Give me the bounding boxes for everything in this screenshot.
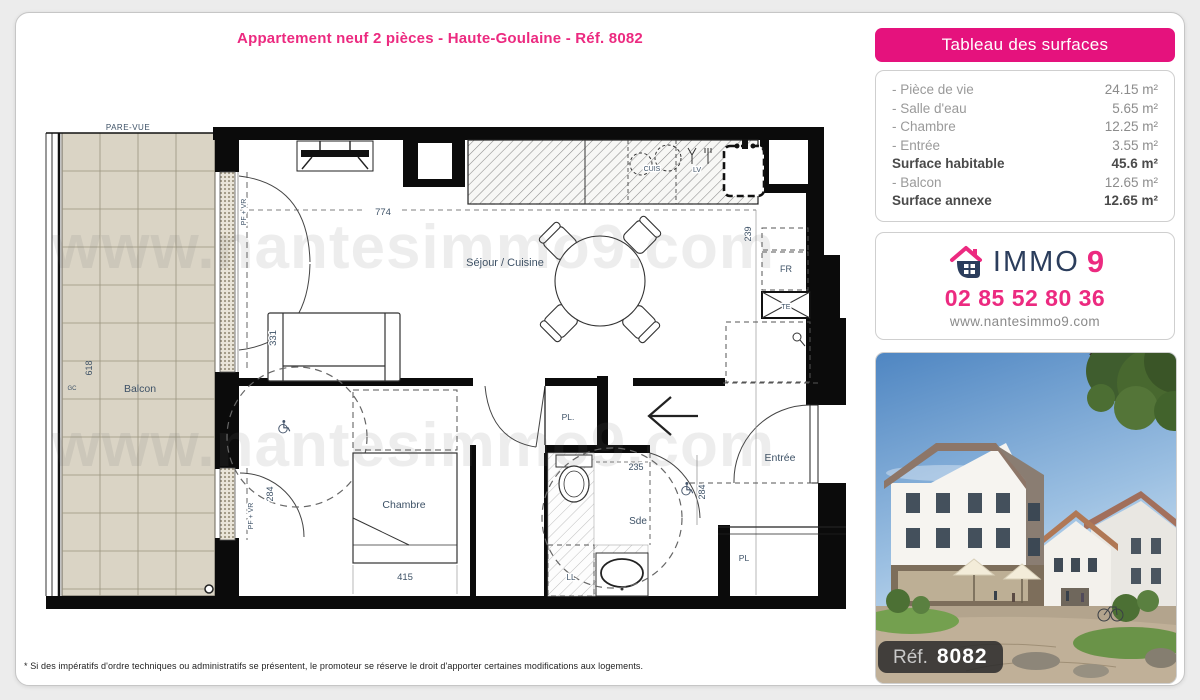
plan-label-ll: LL: [567, 573, 576, 582]
surface-row: - Salle d'eau5.65 m²: [892, 100, 1158, 119]
surface-value: 5.65 m²: [1112, 100, 1158, 119]
agency-phone[interactable]: 02 85 52 80 36: [945, 285, 1105, 312]
plan-label-pf-vr-sejour: PF + VR: [241, 199, 248, 226]
plan-label-pf-vr-chambre: PF + VR: [248, 503, 255, 530]
plan-label-entree: Entrée: [765, 452, 796, 464]
plan-dim-284-chambre: 284: [265, 486, 275, 501]
surface-value: 24.15 m²: [1105, 81, 1158, 100]
appliance-column: [726, 210, 810, 595]
rock: [1012, 652, 1060, 670]
plan-dim-284-entree: 284: [697, 484, 707, 499]
plan-label-balcon: Balcon: [124, 383, 156, 395]
plan-label-sde: Sde: [629, 516, 647, 527]
plan-dim-235: 235: [628, 462, 643, 472]
building-photo: [875, 352, 1177, 684]
brand-immo-text: IMMO: [993, 246, 1080, 279]
surface-label: - Pièce de vie: [892, 81, 974, 100]
tv-stand: [297, 141, 373, 171]
surface-label: - Balcon: [892, 174, 942, 193]
ref-value: 8082: [937, 645, 988, 669]
building-render: [876, 353, 1176, 683]
dining-set: [538, 215, 662, 344]
round-table: [555, 236, 645, 326]
wardrobe: [353, 390, 457, 450]
ref-label: Réf.: [893, 647, 928, 669]
wheelchair-icon: [279, 420, 290, 433]
surface-value: 12.65 m²: [1104, 192, 1158, 211]
plan-label-te: TE: [782, 304, 791, 311]
plan-label-sejour-cuisine: Séjour / Cuisine: [466, 257, 544, 269]
agency-panel: IMMO9 02 85 52 80 36 www.nantesimmo9.com: [875, 232, 1175, 340]
surfaces-table: - Pièce de vie24.15 m² - Salle d'eau5.65…: [875, 70, 1175, 222]
balcony-railing: [46, 133, 52, 596]
plan-label-lv: LV: [693, 167, 701, 174]
surface-row: - Pièce de vie24.15 m²: [892, 81, 1158, 100]
surface-row: - Chambre12.25 m²: [892, 118, 1158, 137]
surfaces-panel-header: Tableau des surfaces: [875, 28, 1175, 62]
bedroom: [227, 367, 457, 594]
bathroom: [542, 448, 697, 596]
sofa: [268, 313, 400, 381]
agency-logo: IMMO9: [946, 243, 1104, 281]
surface-label: Surface habitable: [892, 155, 1005, 174]
plan-label-pare-vue: PARE-VUE: [106, 123, 150, 132]
kitchen-sink: [724, 146, 764, 196]
plan-label-gc: GC: [68, 386, 78, 392]
surface-row: - Balcon12.65 m²: [892, 174, 1158, 193]
surface-label: Surface annexe: [892, 192, 992, 211]
immo9-house-icon: [946, 243, 986, 281]
balcony: [46, 133, 215, 596]
surface-label: - Chambre: [892, 118, 956, 137]
legal-footnote: * Si des impératifs d'ordre techniques o…: [24, 661, 643, 671]
plan-label-pl-hall: PL.: [562, 412, 575, 422]
floor-plan: PARE-VUE Balcon 618 GC PF + VR 331 774 C…: [40, 118, 860, 630]
flyer-page: Appartement neuf 2 pièces - Haute-Goulai…: [0, 0, 1200, 700]
surface-row-total-annexe: Surface annexe12.65 m²: [892, 192, 1158, 211]
brand-9-text: 9: [1087, 244, 1104, 280]
reference-badge: Réf. 8082: [878, 641, 1003, 673]
balcony-drain: [205, 585, 213, 593]
plan-label-chambre: Chambre: [382, 499, 425, 511]
plan-dim-415: 415: [397, 572, 413, 583]
plan-dim-331: 331: [268, 330, 279, 346]
surface-value: 3.55 m²: [1112, 137, 1158, 156]
plan-label-cuis: CUIS: [644, 166, 661, 173]
wall-window-top-left: [418, 143, 452, 179]
plan-dim-774: 774: [375, 207, 391, 218]
surface-label: - Salle d'eau: [892, 100, 967, 119]
entry-arrow-icon: [649, 397, 698, 435]
surface-value: 45.6 m²: [1111, 155, 1158, 174]
glazed-openings: [220, 172, 247, 540]
surface-value: 12.25 m²: [1105, 118, 1158, 137]
page-title: Appartement neuf 2 pièces - Haute-Goulai…: [15, 30, 865, 47]
plan-dim-239: 239: [743, 226, 753, 241]
plan-label-pl-entree: PL: [739, 553, 750, 563]
entry-door-leaf: [810, 405, 818, 483]
plan-dim-618: 618: [84, 360, 94, 375]
surface-value: 12.65 m²: [1105, 174, 1158, 193]
wheelchair-icon: [682, 482, 693, 495]
surface-row: - Entrée3.55 m²: [892, 137, 1158, 156]
plan-label-fr: FR: [780, 264, 792, 274]
turning-circle: [227, 367, 367, 507]
sink-faucet: [742, 139, 748, 149]
rock: [1145, 648, 1176, 668]
agency-website-link[interactable]: www.nantesimmo9.com: [950, 314, 1100, 329]
wall-window-top-right: [769, 140, 808, 184]
rock: [1073, 664, 1109, 678]
surface-label: - Entrée: [892, 137, 940, 156]
surface-row-total-habitable: Surface habitable45.6 m²: [892, 155, 1158, 174]
